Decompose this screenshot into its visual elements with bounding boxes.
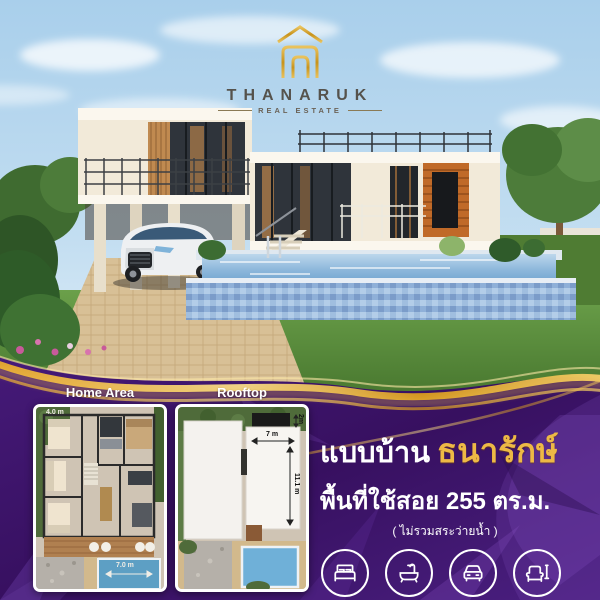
home-area-floorplan: 4.0 m 7.0 m [33,404,167,592]
title-prefix: แบบบ้าน [320,437,430,469]
amenity-livingroom: 1 Livingroom [512,549,562,600]
poster: THANARUK REAL ESTATE [0,0,600,600]
info-panel: แบบบ้านธนารักษ์ พื้นที่ใช้สอย 255 ตร.ม. … [320,424,592,600]
brand-name: THANARUK [0,87,600,105]
brand-logo: THANARUK REAL ESTATE [0,22,600,115]
plan-dim-roof-width: 7 m [266,431,278,438]
plan-title: แบบบ้านธนารักษ์ [320,424,592,477]
plan-label: Home Area [32,385,168,400]
usable-area: พื้นที่ใช้สอย 255 ตร.ม. [320,481,592,520]
rooftop-floorplan: 7 m 11.1 m 2m [175,404,309,592]
logo-divider-right [348,110,382,111]
car-icon [449,549,497,597]
amenities-row: 3 Bedroom 2 Bathroom [320,549,592,600]
brand-subtitle: REAL ESTATE [258,106,342,115]
plan-dim-side: 2m [297,414,304,424]
plan-dim-pool-width: 7.0 m [116,562,134,569]
armchair-icon [513,549,561,597]
area-note: ( ไม่รวมสระว่ายน้ำ ) [320,522,570,541]
logo-divider-left [218,110,252,111]
plan-label: Rooftop [174,385,310,400]
bed-icon [321,549,369,597]
rooftop-plan-drawing [178,407,306,589]
plan-card-home-area: Home Area [32,385,168,592]
bathtub-icon [385,549,433,597]
amenity-parking: 2 Parking [448,549,498,600]
amenity-bedroom: 3 Bedroom [320,549,370,600]
title-name: ธนารักษ์ [437,432,558,469]
amenity-bathroom: 2 Bathroom [384,549,434,600]
house-logo-icon [268,22,332,80]
plan-dim-roof-length: 11.1 m [293,473,300,494]
plan-dim-top-width: 4.0 m [46,409,64,416]
home-area-plan-drawing [36,407,164,589]
plan-card-rooftop: Rooftop [174,385,310,592]
